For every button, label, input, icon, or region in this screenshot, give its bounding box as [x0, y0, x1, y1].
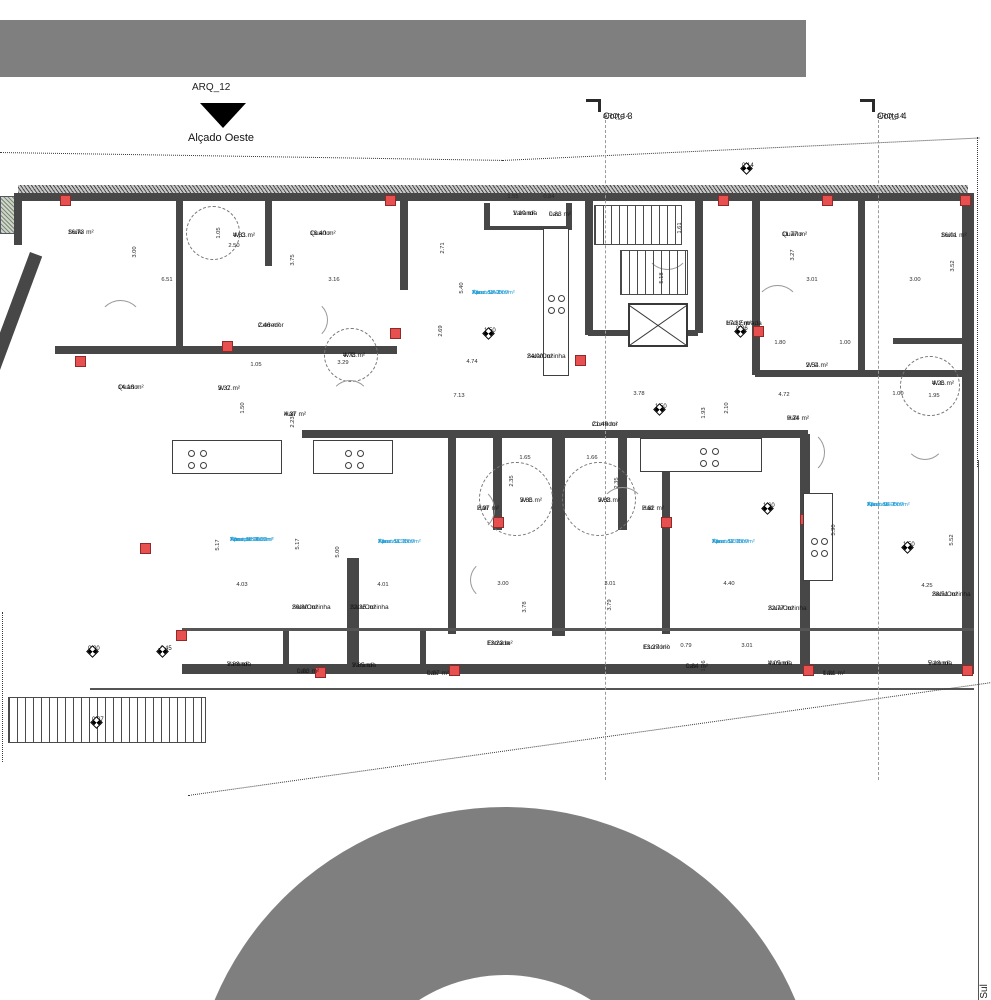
dimension-text: 4.01 — [377, 582, 388, 588]
stove-burner-icon — [345, 462, 352, 469]
dimension-text: 3.01 — [741, 643, 752, 649]
dimension-text: 2.71 — [440, 242, 446, 253]
door-swing-arc — [330, 380, 370, 420]
wall-segment — [585, 193, 593, 335]
dimension-text: 3.78 — [522, 601, 528, 612]
stove-burner-icon — [558, 295, 565, 302]
dimension-text: 2.35 — [614, 477, 620, 488]
dimension-text: 3.29 — [337, 360, 348, 366]
dimension-text: 5.40 — [459, 282, 465, 293]
dimension-text: 0.79 — [680, 643, 691, 649]
stair-treads — [594, 205, 682, 245]
stair-treads — [8, 697, 206, 743]
dimension-text: 5.52 — [949, 534, 955, 545]
section-cut-line — [878, 115, 879, 780]
column-marker — [75, 356, 86, 367]
column-marker — [803, 665, 814, 676]
stove-burner-icon — [558, 307, 565, 314]
edge-line — [90, 688, 974, 690]
dimension-text: 3.52 — [950, 260, 956, 271]
boundary-dotted-line — [2, 612, 3, 762]
plan-layer: Corte 3ARQ_14Corte 4ARQ_14Suite16.73 m²W… — [0, 0, 991, 1000]
wall-segment — [695, 193, 703, 333]
wall-segment — [552, 438, 565, 636]
boundary-dotted-line — [188, 682, 990, 796]
stove-burner-icon — [712, 460, 719, 467]
stove-burner-icon — [188, 462, 195, 469]
door-swing-arc — [98, 300, 143, 345]
dimension-text: 1.00 — [839, 340, 850, 346]
column-marker — [718, 195, 729, 206]
column-marker — [176, 630, 187, 641]
wall-segment — [858, 193, 865, 373]
fixture-circle — [186, 206, 240, 260]
wall-segment — [14, 193, 22, 245]
dimension-text: 1.55 — [507, 194, 518, 200]
stove-burner-icon — [811, 538, 818, 545]
door-swing-arc — [288, 300, 328, 340]
wall-segment — [0, 252, 42, 674]
column-marker — [962, 665, 973, 676]
dimension-text: 2.23 — [290, 416, 296, 427]
door-swing-arc — [600, 487, 645, 532]
stove-burner-icon — [821, 538, 828, 545]
wall-segment — [752, 193, 760, 375]
dimension-text: 3.78 — [633, 391, 644, 397]
dimension-text: 1.61 — [677, 222, 683, 233]
dimension-text: 3.01 — [806, 277, 817, 283]
elevator-shaft — [628, 303, 688, 347]
stove-burner-icon — [821, 550, 828, 557]
column-marker — [140, 543, 151, 554]
dimension-text: 3.00 — [909, 277, 920, 283]
wall-segment — [265, 198, 272, 266]
wall-segment — [420, 630, 426, 670]
dimension-text: 4.40 — [723, 581, 734, 587]
dimension-text: 1.50 — [240, 402, 246, 413]
column-marker — [753, 326, 764, 337]
stove-burner-icon — [188, 450, 195, 457]
dimension-text: 5.90 — [831, 524, 837, 535]
stove-burner-icon — [200, 462, 207, 469]
dimension-text: 3.01 — [604, 581, 615, 587]
boundary-dotted-line — [0, 152, 502, 161]
dimension-text: 1.80 — [774, 340, 785, 346]
dimension-text: 5.17 — [215, 539, 221, 550]
wall-segment — [448, 434, 456, 634]
door-swing-arc — [905, 420, 945, 460]
stove-burner-icon — [700, 448, 707, 455]
door-swing-arc — [470, 560, 510, 600]
kitchen-counter — [640, 438, 762, 472]
column-marker — [822, 195, 833, 206]
dimension-text: 4.72 — [778, 392, 789, 398]
dimension-text: 1.95 — [928, 393, 939, 399]
stove-burner-icon — [357, 450, 364, 457]
stove-burner-icon — [548, 307, 555, 314]
dimension-text: 3.00 — [132, 246, 138, 257]
dimension-text: 1.05 — [250, 362, 261, 368]
column-marker — [575, 355, 586, 366]
column-marker — [60, 195, 71, 206]
stove-burner-icon — [200, 450, 207, 457]
wall-segment — [400, 200, 408, 290]
edge-line — [182, 628, 974, 631]
kitchen-counter — [313, 440, 393, 474]
section-cut-line — [605, 115, 606, 780]
stove-burner-icon — [712, 448, 719, 455]
floor-plan-sheet: ARQ_12 Alçado Oeste Alçado Sul Corte 3AR… — [0, 0, 991, 1000]
boundary-dotted-line — [977, 137, 978, 467]
dimension-text: 1.26 — [701, 660, 707, 671]
wall-segment — [283, 630, 289, 670]
dimension-text: 3.16 — [328, 277, 339, 283]
dimension-text: 5.17 — [295, 538, 301, 549]
stove-burner-icon — [811, 550, 818, 557]
wall-segment — [347, 558, 359, 668]
dimension-text: 1.65 — [519, 455, 530, 461]
dimension-text: 3.75 — [290, 254, 296, 265]
section-flag-icon — [860, 99, 875, 112]
dimension-text: 1.00 — [892, 391, 903, 397]
kitchen-counter — [803, 493, 833, 581]
wall-segment — [176, 198, 183, 348]
dimension-text: 3.79 — [607, 599, 613, 610]
dimension-text: 7.13 — [453, 393, 464, 399]
kitchen-counter — [172, 440, 282, 474]
dimension-text: 5.18 — [659, 272, 665, 283]
dimension-text: 4.25 — [921, 583, 932, 589]
dimension-text: 0.84 — [543, 194, 554, 200]
stair-treads — [620, 250, 688, 295]
dimension-text: 1.05 — [216, 227, 222, 238]
stove-burner-icon — [345, 450, 352, 457]
stove-burner-icon — [548, 295, 555, 302]
dimension-text: 2.35 — [509, 475, 515, 486]
column-marker — [222, 341, 233, 352]
dimension-text: 2.50 — [228, 243, 239, 249]
column-marker — [385, 195, 396, 206]
dimension-text: 1.93 — [701, 407, 707, 418]
wall-segment — [962, 193, 974, 671]
wall-segment — [18, 185, 968, 193]
wall-segment — [893, 338, 965, 344]
dimension-text: 1.66 — [586, 455, 597, 461]
door-swing-arc — [780, 430, 825, 475]
stove-burner-icon — [700, 460, 707, 467]
section-flag-icon — [586, 99, 601, 112]
dimension-text: 2.69 — [438, 325, 444, 336]
column-marker — [960, 195, 971, 206]
dimension-text: 6.51 — [161, 277, 172, 283]
dimension-text: 4.03 — [236, 582, 247, 588]
boundary-dotted-line — [502, 137, 980, 161]
column-marker — [661, 517, 672, 528]
wall-segment — [302, 430, 808, 438]
dimension-text: 5.00 — [335, 546, 341, 557]
column-marker — [449, 665, 460, 676]
dimension-text: 2.10 — [724, 402, 730, 413]
column-marker — [390, 328, 401, 339]
dimension-text: 3.00 — [497, 581, 508, 587]
stove-burner-icon — [357, 462, 364, 469]
dimension-text: 3.27 — [790, 249, 796, 260]
dimension-text: 4.74 — [466, 359, 477, 365]
